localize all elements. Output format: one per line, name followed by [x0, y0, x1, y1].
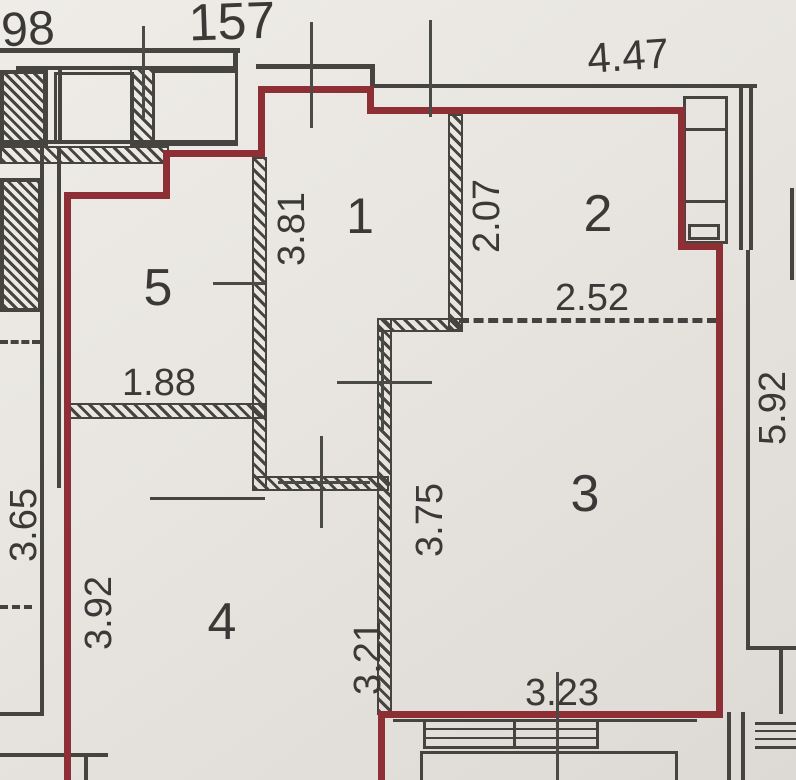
tick-corridor-1	[142, 26, 145, 118]
outline-left-wall	[64, 192, 71, 780]
wall-hall-kitchen-v	[448, 114, 463, 331]
outline-right-wall	[716, 243, 723, 718]
wall-cavity-1	[54, 72, 134, 144]
wall-hatched-band	[0, 146, 169, 164]
wall-bottomright-a	[727, 712, 731, 780]
room-2-label: 2	[584, 188, 613, 240]
wall-room5-bottom	[64, 403, 266, 419]
vent-shaft	[683, 96, 728, 244]
dim-room5-width: 1.88	[122, 364, 196, 402]
outline-right-upper	[678, 107, 685, 250]
window-line-3	[423, 746, 599, 749]
tick-corridor-3	[429, 20, 432, 117]
wall-top-connector	[233, 48, 238, 70]
outline-top-a	[258, 86, 374, 93]
dim-hall-height: 3.81	[273, 192, 311, 266]
dashed-left-upper	[0, 340, 40, 344]
vent-shaft-inner-box	[688, 224, 720, 240]
window-right-line-2	[755, 730, 796, 732]
wall-right-outer-b	[749, 84, 753, 250]
dim-bottom-window-width: 3.23	[525, 674, 599, 712]
room-5-label: 5	[144, 262, 173, 314]
outline-bottom-left-drop	[378, 711, 385, 780]
wall-bottomleft-h	[0, 753, 108, 757]
wall-right-step-v	[779, 650, 783, 714]
window-line-2	[423, 737, 599, 739]
dim-room3-wall-height: 3.75	[411, 483, 449, 557]
window-head-line	[393, 719, 697, 722]
floor-plan-photo: 157 98 4.47 3.81 2.07 2.52 5.92 1.88 3.6…	[0, 0, 796, 780]
window-right-line-4	[755, 746, 796, 749]
dim-room4-right-height: 3.21	[349, 621, 387, 695]
wall-cavity-2	[152, 70, 238, 146]
wall-far-right-seg	[790, 188, 794, 280]
outline-room5-top	[64, 192, 170, 199]
dim-room2-bottom-width: 2.52	[555, 279, 629, 317]
outline-top-band	[163, 150, 265, 157]
wall-right-outer-a	[739, 84, 743, 250]
window-right-line-3	[755, 738, 796, 740]
room-3-label: 3	[571, 468, 600, 520]
wall-room5-right	[252, 157, 267, 491]
wall-hatched-left-box	[0, 178, 42, 312]
tick-cross2-h	[278, 481, 370, 484]
tick-cross1-v	[381, 332, 384, 430]
door-opening-line	[150, 497, 265, 500]
window-right-line-1	[755, 722, 796, 725]
apartment-number-label: 157	[188, 0, 277, 49]
outline-step-up-2	[258, 86, 265, 157]
wall-top-right-a	[256, 64, 372, 69]
wall-hatched-topleft	[0, 70, 48, 148]
wall-bottomleft-v	[84, 753, 88, 780]
window-line-1	[423, 728, 599, 730]
neighbor-number-label: 98	[0, 5, 56, 56]
tick-corridor-2	[310, 22, 313, 128]
room-4-label: 4	[208, 596, 237, 648]
balcony-outline	[420, 751, 678, 780]
window-jamb-right	[596, 719, 599, 749]
dim-room2-left-height: 2.07	[468, 179, 506, 253]
outline-step-up-1	[163, 150, 170, 199]
dashed-left-lower	[0, 605, 32, 609]
window-mullion	[513, 719, 516, 749]
wall-right-outer-c	[746, 250, 750, 650]
tick-cross1-h	[337, 381, 432, 384]
wall-left-double	[40, 148, 61, 488]
wall-bottomright-b	[741, 712, 745, 780]
tick-hall-381	[213, 282, 265, 285]
room-1-label: 1	[346, 191, 374, 241]
outline-top-b	[367, 107, 685, 114]
dim-room4-left-height: 3.92	[80, 576, 118, 650]
dim-right-outer-height: 5.92	[754, 371, 792, 445]
window-jamb-left	[423, 719, 426, 749]
wall-left-bottom-h	[0, 712, 44, 716]
dim-top-width: 4.47	[586, 32, 670, 80]
dim-outer-left-height: 3.65	[5, 488, 43, 562]
tick-cross2-v	[320, 436, 323, 528]
wall-right-step-h	[748, 646, 796, 650]
